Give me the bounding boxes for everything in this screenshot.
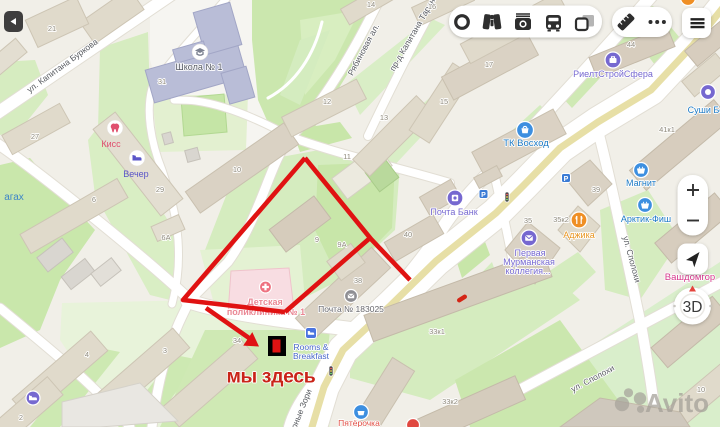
svg-text:40: 40	[404, 230, 412, 239]
svg-text:Суши Бо: Суши Бо	[688, 105, 720, 115]
svg-text:10: 10	[233, 165, 241, 174]
svg-text:агах: агах	[4, 192, 24, 203]
svg-text:17: 17	[485, 60, 493, 69]
svg-text:41к1: 41к1	[659, 125, 675, 134]
svg-text:11: 11	[343, 152, 351, 161]
svg-text:Avito: Avito	[645, 388, 709, 418]
svg-text:12: 12	[323, 97, 331, 106]
svg-text:3D: 3D	[683, 299, 703, 316]
svg-text:31: 31	[158, 77, 166, 86]
svg-text:P: P	[481, 192, 486, 199]
svg-text:38: 38	[354, 276, 362, 285]
svg-text:3: 3	[163, 346, 167, 355]
svg-text:13: 13	[380, 113, 388, 122]
svg-text:9: 9	[315, 235, 319, 244]
svg-text:6: 6	[92, 195, 96, 204]
svg-text:Магнит: Магнит	[626, 178, 656, 188]
svg-text:Вечер: Вечер	[123, 169, 148, 179]
svg-text:35к2: 35к2	[553, 215, 569, 224]
svg-text:2: 2	[19, 413, 23, 422]
svg-text:РиелтСтройСфера: РиелтСтройСфера	[573, 69, 653, 79]
svg-text:P: P	[564, 176, 569, 183]
svg-text:ТК Восход: ТК Восход	[503, 138, 549, 149]
svg-text:Арктик-Фиш: Арктик-Фиш	[621, 214, 671, 224]
svg-text:4: 4	[85, 350, 89, 359]
svg-text:39: 39	[592, 185, 600, 194]
svg-text:Breakfast: Breakfast	[293, 351, 330, 361]
svg-text:21: 21	[48, 24, 56, 33]
svg-text:Школа № 1: Школа № 1	[175, 62, 222, 72]
svg-text:15: 15	[440, 97, 448, 106]
svg-text:Почта № 183025: Почта № 183025	[318, 304, 384, 314]
svg-text:33к1: 33к1	[429, 327, 445, 336]
svg-text:Аджика: Аджика	[563, 230, 594, 240]
svg-text:29: 29	[156, 185, 164, 194]
svg-text:33к2: 33к2	[442, 397, 458, 406]
svg-text:мы здесь: мы здесь	[227, 366, 316, 388]
svg-text:44: 44	[627, 40, 635, 49]
svg-text:27: 27	[31, 132, 39, 141]
svg-text:Почта Банк: Почта Банк	[430, 207, 477, 217]
svg-text:34: 34	[233, 336, 241, 345]
svg-text:16: 16	[428, 2, 436, 11]
svg-text:Кисс: Кисс	[101, 139, 121, 149]
svg-text:6А: 6А	[161, 233, 170, 242]
svg-text:14: 14	[367, 0, 375, 9]
svg-text:9А: 9А	[337, 240, 346, 249]
svg-text:Пятёрочка: Пятёрочка	[338, 418, 380, 427]
svg-text:коллегия...: коллегия...	[505, 266, 550, 276]
svg-text:Детская: Детская	[247, 297, 282, 307]
svg-text:35: 35	[524, 216, 532, 225]
